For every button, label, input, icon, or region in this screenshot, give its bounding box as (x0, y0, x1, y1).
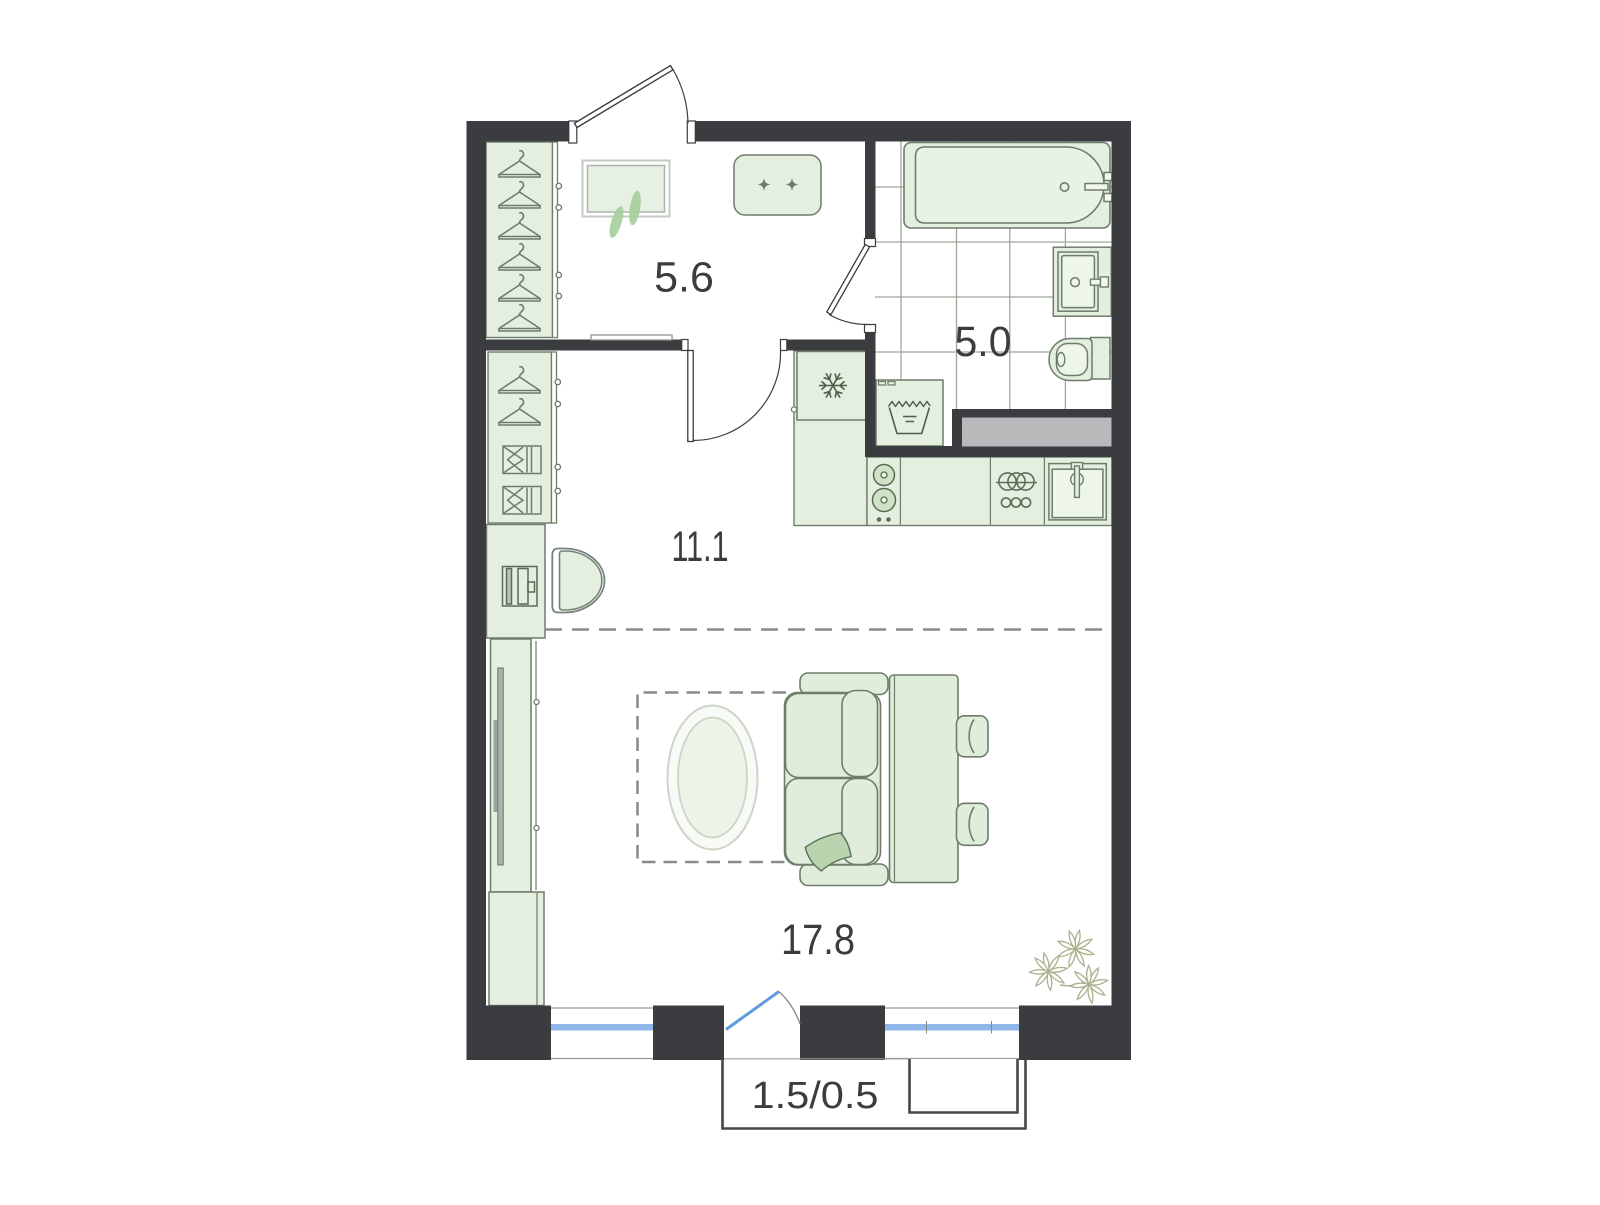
svg-text:11.1: 11.1 (672, 523, 729, 571)
svg-text:1.5/0.5: 1.5/0.5 (752, 1075, 879, 1117)
svg-text:5.6: 5.6 (654, 254, 714, 302)
svg-text:5.0: 5.0 (955, 318, 1012, 366)
svg-text:17.8: 17.8 (781, 916, 855, 964)
